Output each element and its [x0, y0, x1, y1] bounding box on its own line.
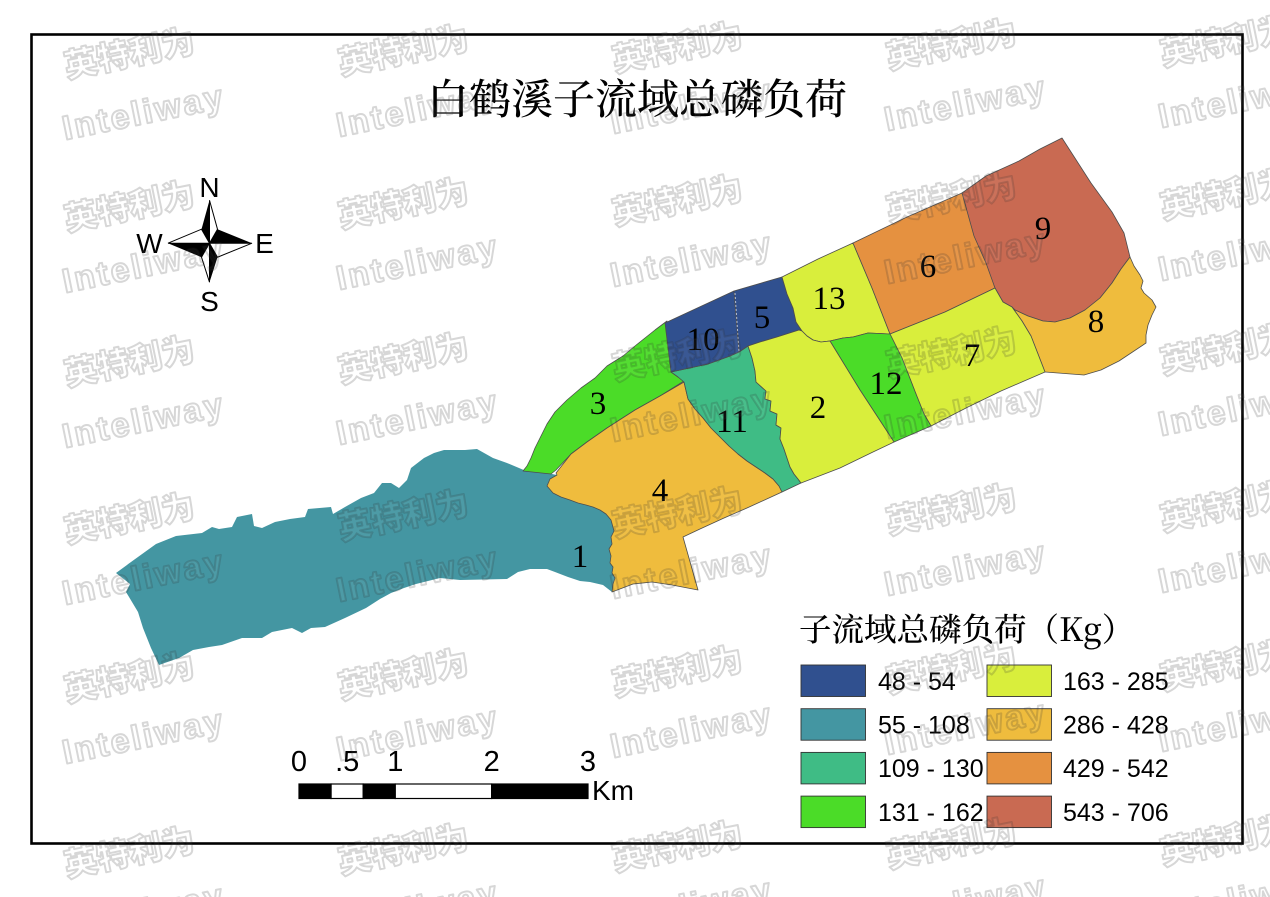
svg-text:N: N	[199, 172, 219, 203]
svg-text:8: 8	[1088, 304, 1105, 340]
svg-text:286 - 428: 286 - 428	[1063, 711, 1169, 739]
svg-text:543 - 706: 543 - 706	[1063, 799, 1169, 827]
svg-text:1: 1	[572, 539, 589, 575]
svg-text:2: 2	[484, 746, 500, 778]
svg-text:0: 0	[291, 746, 307, 778]
svg-text:3: 3	[590, 386, 607, 422]
svg-text:131 - 162: 131 - 162	[878, 799, 984, 827]
svg-text:429 - 542: 429 - 542	[1063, 755, 1169, 783]
svg-text:5: 5	[754, 300, 771, 336]
svg-text:S: S	[200, 286, 219, 317]
svg-text:Km: Km	[592, 775, 634, 806]
svg-text:13: 13	[813, 281, 846, 317]
svg-text:E: E	[255, 228, 274, 259]
svg-text:2: 2	[810, 390, 827, 426]
svg-text:3: 3	[580, 746, 596, 778]
svg-text:163 - 285: 163 - 285	[1063, 668, 1169, 696]
